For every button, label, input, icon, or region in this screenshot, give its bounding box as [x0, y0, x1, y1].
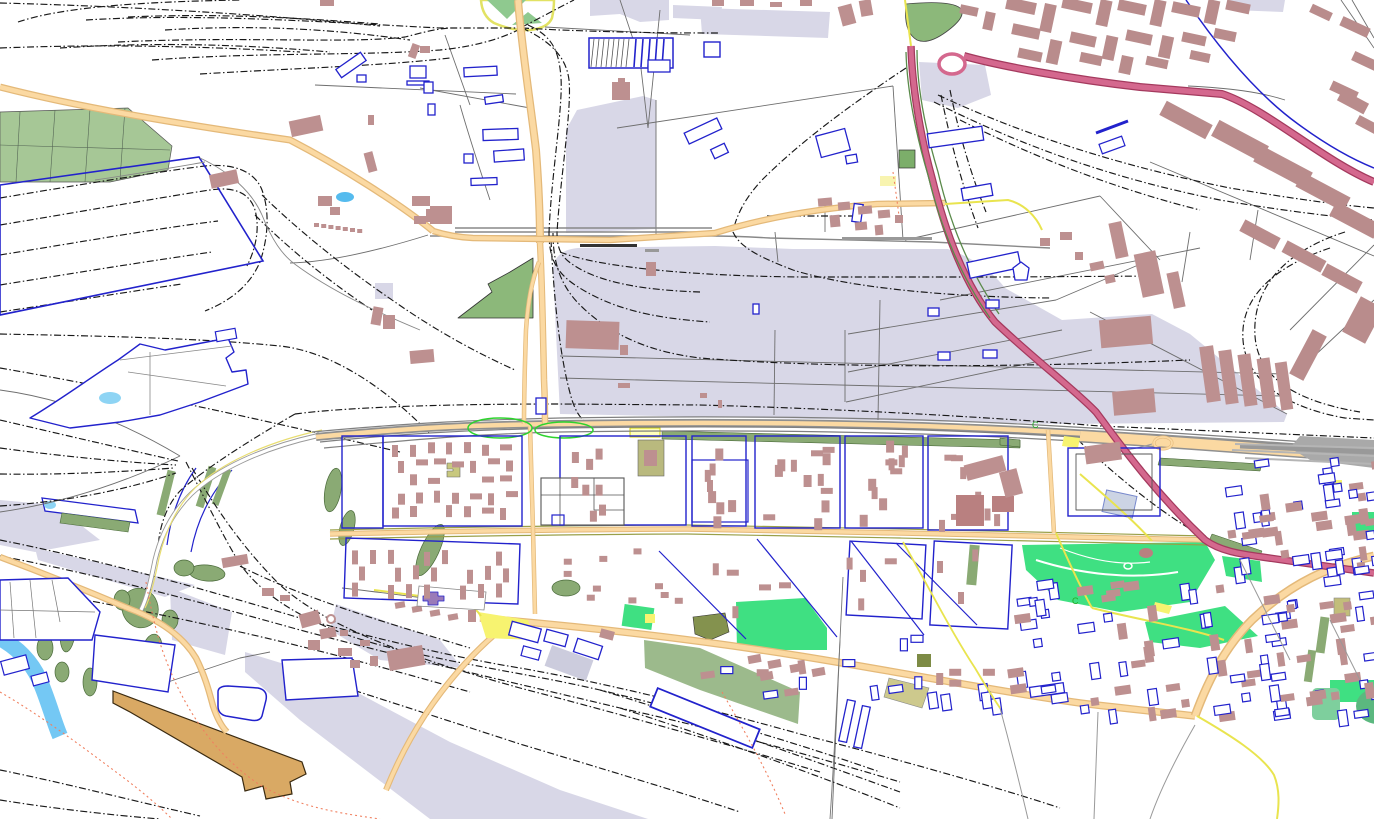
svg-text:C: C	[1032, 420, 1039, 430]
svg-text:C: C	[1072, 596, 1079, 606]
